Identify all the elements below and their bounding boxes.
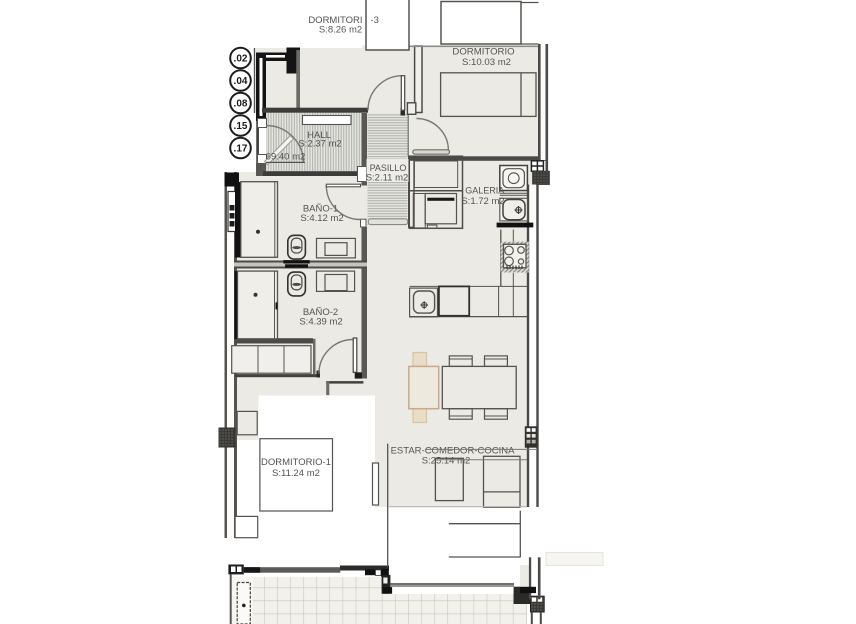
svg-text:DORMITORIO: DORMITORIO	[452, 47, 514, 58]
svg-text:DORMITORIO-1: DORMITORIO-1	[261, 457, 331, 468]
svg-text:GALERIA: GALERIA	[465, 186, 504, 196]
svg-text:S:4.39 m2: S:4.39 m2	[299, 317, 342, 328]
svg-text:S:4.12 m2: S:4.12 m2	[300, 213, 343, 224]
svg-text:S:10.03 m2: S:10.03 m2	[462, 57, 511, 68]
svg-text:PASILLO: PASILLO	[370, 163, 407, 173]
svg-text:S:25.14 m2: S:25.14 m2	[422, 455, 471, 466]
svg-text:.02: .02	[234, 54, 248, 65]
svg-text:.15: .15	[234, 121, 248, 132]
svg-text:.08: .08	[234, 99, 248, 110]
svg-text:S:8.26 m2: S:8.26 m2	[319, 25, 362, 36]
svg-text:.17: .17	[234, 144, 248, 155]
svg-text:S:1.72 m2: S:1.72 m2	[461, 196, 504, 207]
svg-text:69.40 m2: 69.40 m2	[266, 152, 306, 163]
svg-text:S:2.37 m2: S:2.37 m2	[298, 139, 341, 150]
svg-text:S:2.11 m2: S:2.11 m2	[366, 173, 409, 184]
svg-text:-3: -3	[371, 15, 379, 26]
svg-text:S:11.24 m2: S:11.24 m2	[272, 468, 320, 479]
svg-text:.04: .04	[234, 76, 248, 87]
